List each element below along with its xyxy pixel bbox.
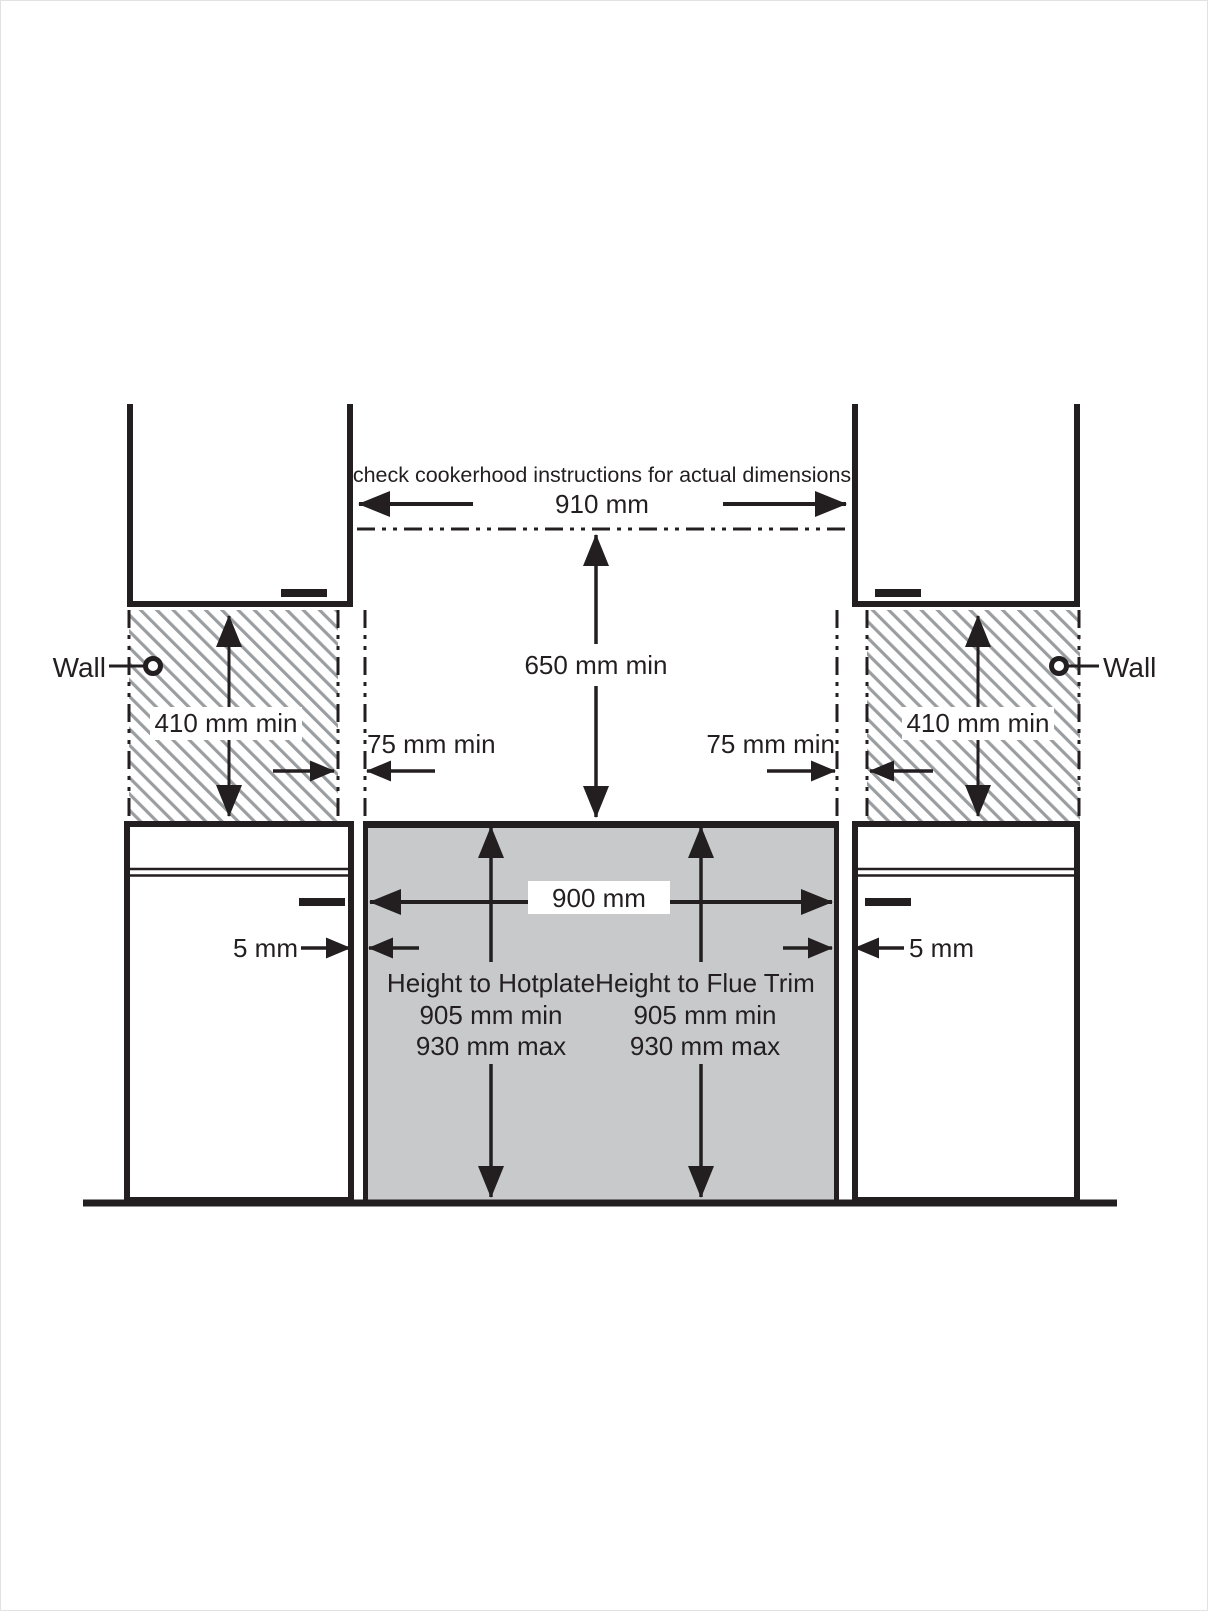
hotplate-min: 905 mm min (419, 1000, 562, 1030)
base-cabinet-left (127, 824, 351, 1200)
flue-trim-min: 905 mm min (633, 1000, 776, 1030)
flue-trim-title: Height to Flue Trim (595, 968, 815, 998)
hotplate-max: 930 mm max (416, 1031, 566, 1061)
wall-label-left: Wall (53, 652, 106, 683)
dim-75-right: 75 mm min (706, 729, 835, 759)
installation-diagram: check cookerhood instructions for actual… (0, 0, 1208, 1611)
cookerhood-note: check cookerhood instructions for actual… (353, 463, 851, 487)
wall-marker-left (146, 659, 161, 674)
wall-cabinet-right (855, 404, 1077, 604)
base-cabinet-left-handle (299, 898, 345, 906)
wall-cabinet-right-handle (875, 589, 921, 597)
base-cabinet-right (855, 824, 1077, 1200)
base-cabinet-right-handle (865, 898, 911, 906)
diagram-canvas: check cookerhood instructions for actual… (1, 1, 1208, 1611)
dim-410-right: 410 mm min (906, 708, 1049, 738)
wall-cabinet-left-handle (281, 589, 327, 597)
wall-marker-right (1052, 659, 1067, 674)
wall-label-right: Wall (1103, 652, 1156, 683)
flue-trim-max: 930 mm max (630, 1031, 780, 1061)
dim-75-left: 75 mm min (367, 729, 496, 759)
dim-5-right: 5 mm (909, 933, 974, 963)
dim-5-left: 5 mm (233, 933, 298, 963)
hotplate-title: Height to Hotplate (387, 968, 595, 998)
dim-900: 900 mm (552, 883, 646, 913)
dim-410-left: 410 mm min (154, 708, 297, 738)
dim-910: 910 mm (555, 489, 649, 519)
dim-650: 650 mm min (524, 650, 667, 680)
wall-cabinet-left (130, 404, 350, 604)
